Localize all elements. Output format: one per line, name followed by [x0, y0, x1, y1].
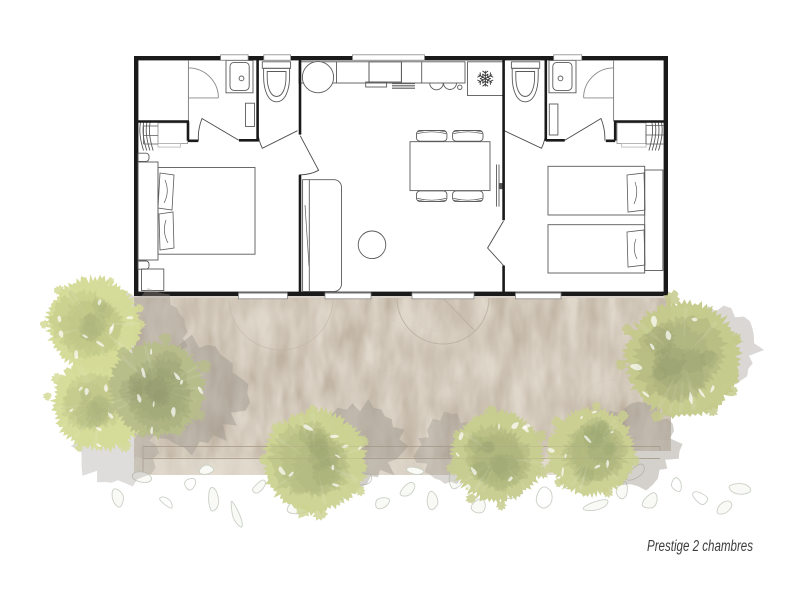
svg-text:Prestige 2 chambres: Prestige 2 chambres	[647, 538, 753, 555]
